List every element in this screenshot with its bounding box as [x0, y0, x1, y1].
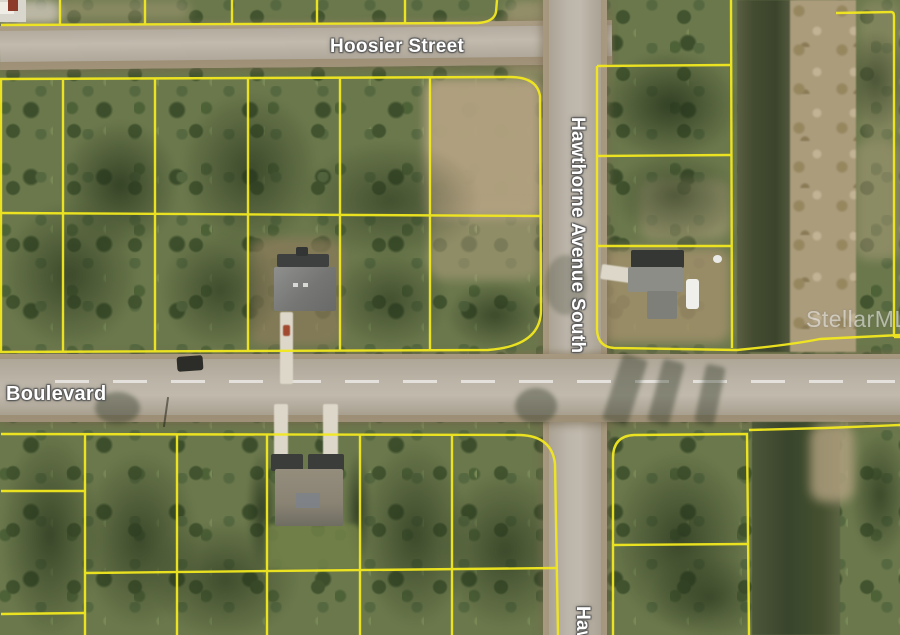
street-label-hawthorne: Hawthorne Avenue South — [566, 117, 588, 353]
parcel-boundaries — [0, 0, 900, 635]
street-label-boulevard: Boulevard — [6, 383, 107, 406]
stellar-mls-watermark: StellarMLS — [806, 306, 900, 333]
street-label-hawthorne-bottom: Hawthorne Avenue South — [571, 606, 593, 635]
satellite-map: Hoosier Street Hawthorne Avenue South Bo… — [0, 0, 900, 635]
street-label-hoosier: Hoosier Street — [330, 36, 464, 58]
